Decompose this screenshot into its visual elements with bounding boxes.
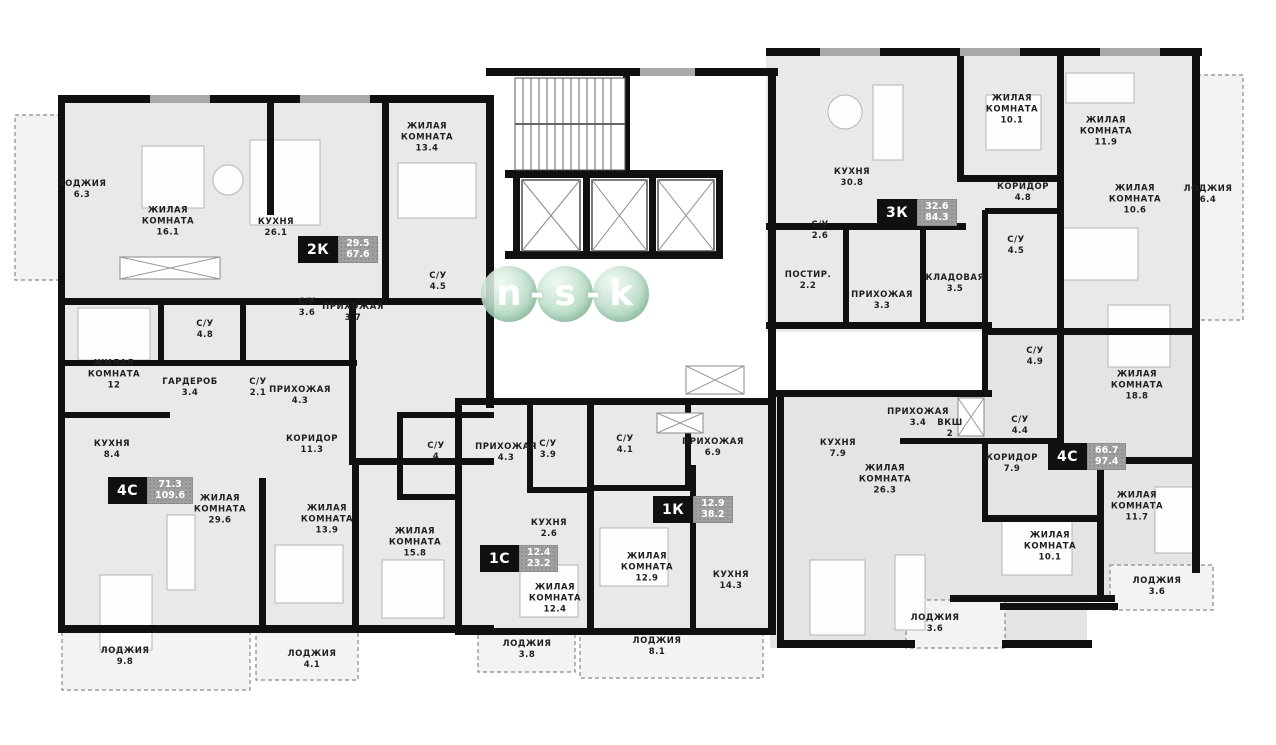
watermark-letter: k [593,266,649,322]
room-label: ЖИЛАЯ КОМНАТА12 [71,358,157,391]
room-label: ЛОДЖИЯ8.1 [614,636,700,658]
room-label: КЛАДОВАЯ3.5 [912,273,998,295]
room-area: 3.8 [484,650,570,661]
apartment-areas: 71.3109.6 [147,477,193,504]
apartment-type: 1С [480,545,519,572]
room-label: С/У3.9 [505,439,591,461]
floor-plan: n-s-k ЛОДЖИЯ6.3ЖИЛАЯ КОМНАТА16.1КУХНЯ26.… [0,0,1276,745]
room-area: 29.6 [177,516,263,527]
room-name: КУХНЯ [688,570,774,581]
living-area: 29.5 [346,239,369,250]
room-name: ПРИХОЖАЯ [670,437,756,448]
apartment-badge[interactable]: 1К12.938.2 [653,496,733,523]
room-area: 26.3 [842,486,928,497]
room-label: ЖИЛАЯ КОМНАТА16.1 [125,205,211,238]
total-area: 67.6 [346,250,369,261]
room-name: КОРИДОР [980,182,1066,193]
room-area: 11.9 [1063,138,1149,149]
living-area: 12.9 [701,499,724,510]
watermark-letter: n [481,266,537,322]
room-area: 2.6 [777,231,863,242]
total-area: 23.2 [527,559,550,570]
room-name: КЛАДОВАЯ [912,273,998,284]
room-area: 10.1 [969,116,1055,127]
room-area: 2.6 [506,529,592,540]
room-label: ЛОДЖИЯ9.8 [82,646,168,668]
room-name: С/У [162,319,248,330]
apartment-areas: 12.938.2 [693,496,732,523]
room-area: 11.7 [1094,513,1180,524]
apartment-badge[interactable]: 4С71.3109.6 [108,477,193,504]
room-name: ЛОДЖИЯ [39,179,125,190]
room-name: С/У [395,271,481,282]
room-name: ЛОДЖИЯ [269,649,355,660]
living-area: 66.7 [1095,446,1118,457]
room-name: ЛОДЖИЯ [1165,184,1251,195]
room-area: 8.4 [69,450,155,461]
room-name: ЛОДЖИЯ [1114,576,1200,587]
room-name: ЛОДЖИЯ [82,646,168,657]
room-name: С/У [777,220,863,231]
room-name: ЖИЛАЯ КОМНАТА [125,205,211,227]
room-area: 16.1 [125,228,211,239]
room-area: 4.5 [395,282,481,293]
room-name: ЖИЛАЯ КОМНАТА [842,463,928,485]
room-label: ЖИЛАЯ КОМНАТА15.8 [372,526,458,559]
room-area: 6.4 [1165,195,1251,206]
room-name: С/У [977,415,1063,426]
watermark-separator: - [530,274,544,314]
room-area: 10.1 [1007,553,1093,564]
room-name: КОРИДОР [969,453,1055,464]
apartment-areas: 66.797.4 [1087,443,1126,470]
room-area: 7.9 [969,464,1055,475]
room-area: 30.8 [809,178,895,189]
room-name: ЖИЛАЯ КОМНАТА [1007,530,1093,552]
room-label: С/У4.5 [973,235,1059,257]
room-name: ЖИЛАЯ КОМНАТА [969,93,1055,115]
room-name: КУХНЯ [795,438,881,449]
apartment-badge[interactable]: 4С66.797.4 [1048,443,1126,470]
room-area: 11.3 [269,445,355,456]
room-name: ЖИЛАЯ КОМНАТА [512,582,598,604]
watermark-separator: - [586,274,600,314]
room-label: ПРИХОЖАЯ4.3 [257,385,343,407]
room-area: 4.3 [257,396,343,407]
room-label: КУХНЯ30.8 [809,167,895,189]
room-name: КУХНЯ [506,518,592,529]
room-label: ЖИЛАЯ КОМНАТА13.9 [284,503,370,536]
room-name: ЖИЛАЯ КОМНАТА [71,358,157,380]
room-label: КОРИДОР7.9 [969,453,1055,475]
room-label: С/У4.5 [395,271,481,293]
apartment-badge[interactable]: 1С12.423.2 [480,545,558,572]
room-area: 18.8 [1094,392,1180,403]
room-label: КОРИДОР11.3 [269,434,355,456]
room-name: ЖИЛАЯ КОМНАТА [284,503,370,525]
room-name: ЛОДЖИЯ [892,613,978,624]
room-name: ЛОДЖИЯ [484,639,570,650]
room-area: 3.6 [1114,587,1200,598]
room-label: ЛОДЖИЯ6.4 [1165,184,1251,206]
room-label: ЖИЛАЯ КОМНАТА11.9 [1063,115,1149,148]
room-name: С/У [582,434,668,445]
room-label: С/У4.8 [162,319,248,341]
room-area: 6.3 [39,190,125,201]
room-area: 14.3 [688,581,774,592]
total-area: 109.6 [155,491,185,502]
room-label: ЖИЛАЯ КОМНАТА10.1 [1007,530,1093,563]
apartment-type: 4С [108,477,147,504]
room-label: ЛОДЖИЯ3.8 [484,639,570,661]
total-area: 38.2 [701,510,724,521]
room-label: С/У4.1 [582,434,668,456]
room-area: 12 [71,381,157,392]
room-area: 3.9 [505,450,591,461]
elevators [522,180,714,251]
room-area: 4.1 [582,445,668,456]
room-label: ПОСТИР.2.2 [765,270,851,292]
room-name: ПРИХОЖАЯ [310,302,396,313]
room-name: ПОСТИР. [765,270,851,281]
room-label: КУХНЯ7.9 [795,438,881,460]
room-area: 3.5 [912,284,998,295]
room-label: ЖИЛАЯ КОМНАТА11.7 [1094,490,1180,523]
room-area: 4.9 [992,357,1078,368]
room-label: ЛОДЖИЯ3.6 [1114,576,1200,598]
watermark-letter: s [537,266,593,322]
room-name: С/У [973,235,1059,246]
apartment-type: 3К [877,199,917,226]
room-name: ЖИЛАЯ КОМНАТА [384,121,470,143]
apartment-areas: 12.423.2 [519,545,558,572]
room-name: С/У [505,439,591,450]
staircase [515,78,625,170]
room-name: ЖИЛАЯ КОМНАТА [604,551,690,573]
room-label: КОРИДОР4.8 [980,182,1066,204]
room-label: ЖИЛАЯ КОМНАТА10.1 [969,93,1055,126]
room-area: 4.1 [269,660,355,671]
room-label: КУХНЯ2.6 [506,518,592,540]
room-label: ЖИЛАЯ КОМНАТА18.8 [1094,369,1180,402]
room-label: КУХНЯ8.4 [69,439,155,461]
watermark: n-s-k [481,266,649,322]
apartment-type: 4С [1048,443,1087,470]
room-label: С/У4.9 [992,346,1078,368]
room-label: КУХНЯ14.3 [688,570,774,592]
living-area: 32.6 [925,202,948,213]
room-area: 9.8 [82,657,168,668]
room-name: ПРИХОЖАЯ [875,407,961,418]
apartment-areas: 32.684.3 [917,199,956,226]
room-area: 13.4 [384,144,470,155]
room-area: 6.9 [670,448,756,459]
living-area: 71.3 [158,480,181,491]
room-name: ЛОДЖИЯ [614,636,700,647]
room-area: 15.8 [372,549,458,560]
room-label: ЛОДЖИЯ6.3 [39,179,125,201]
total-area: 97.4 [1095,457,1118,468]
room-label: ЛОДЖИЯ3.6 [892,613,978,635]
room-label: ЖИЛАЯ КОМНАТА13.4 [384,121,470,154]
apartment-badge[interactable]: 3К32.684.3 [877,199,957,226]
room-name: С/У [992,346,1078,357]
room-area: 3.7 [310,313,396,324]
room-label: ПРИХОЖАЯ6.9 [670,437,756,459]
room-name: КОРИДОР [269,434,355,445]
room-label: ЖИЛАЯ КОМНАТА12.9 [604,551,690,584]
room-name: КУХНЯ [233,217,319,228]
room-area: 8.1 [614,647,700,658]
walls-layer [0,0,1276,745]
room-label: ЖИЛАЯ КОМНАТА12.4 [512,582,598,615]
total-area: 84.3 [925,213,948,224]
room-name: ПРИХОЖАЯ [257,385,343,396]
room-name: ЖИЛАЯ КОМНАТА [1063,115,1149,137]
room-area: 7.9 [795,449,881,460]
room-area: 4.8 [162,330,248,341]
room-label: ЛОДЖИЯ4.1 [269,649,355,671]
room-label: С/У4.4 [977,415,1063,437]
apartment-badge[interactable]: 2К29.567.6 [298,236,378,263]
room-area: 12.4 [512,605,598,616]
room-area: 4.4 [977,426,1063,437]
room-area: 3.3 [839,301,925,312]
apartment-type: 1К [653,496,693,523]
room-area: 4.5 [973,246,1059,257]
room-name: ЖИЛАЯ КОМНАТА [372,526,458,548]
living-area: 12.4 [527,548,550,559]
room-label: ПРИХОЖАЯ3.7 [310,302,396,324]
apartment-areas: 29.567.6 [338,236,377,263]
room-name: КУХНЯ [809,167,895,178]
room-label: ЖИЛАЯ КОМНАТА26.3 [842,463,928,496]
room-label: С/У2.6 [777,220,863,242]
room-area: 12.9 [604,574,690,585]
room-area: 13.9 [284,526,370,537]
room-area: 4.8 [980,193,1066,204]
apartment-type: 2К [298,236,338,263]
room-name: ЖИЛАЯ КОМНАТА [1094,369,1180,391]
room-name: КУХНЯ [69,439,155,450]
room-area: 3.6 [892,624,978,635]
room-area: 10.6 [1092,206,1178,217]
room-name: ЖИЛАЯ КОМНАТА [1094,490,1180,512]
